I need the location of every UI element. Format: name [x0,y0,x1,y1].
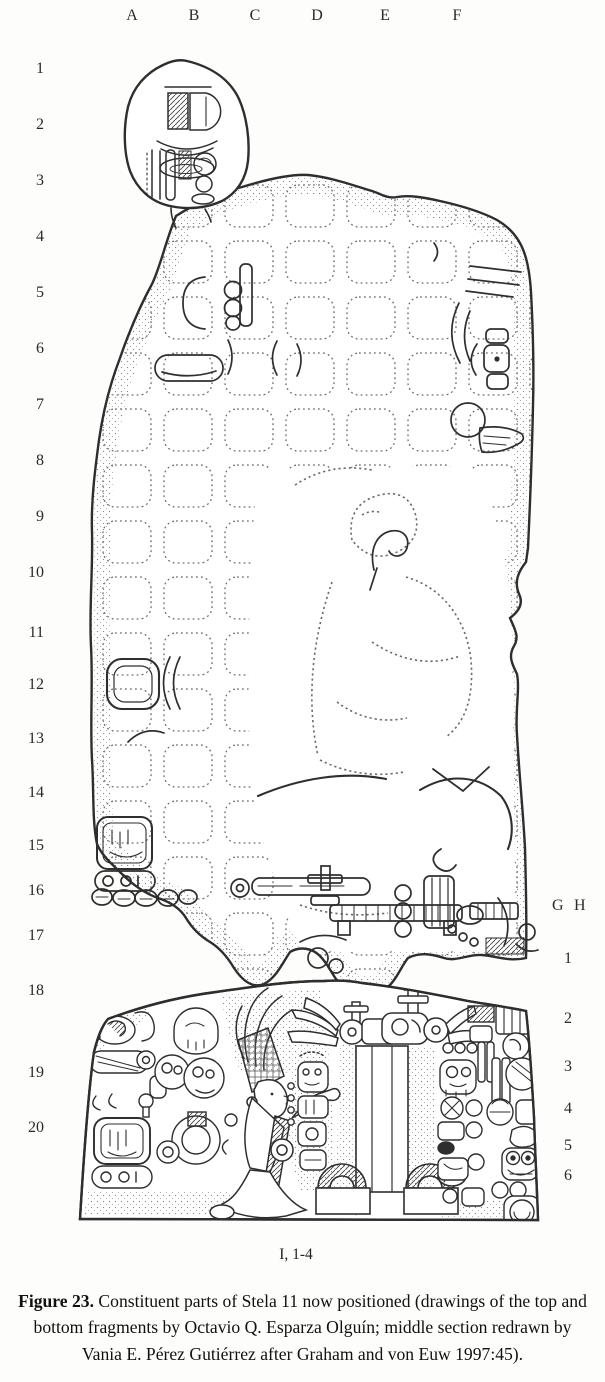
column-label-E: E [380,8,390,24]
row-label-18: 18 [18,983,44,999]
column-label-F: F [453,8,462,24]
row-label-15: 15 [18,838,44,854]
column-label-D: D [311,8,323,24]
row-label-5: 5 [18,285,44,301]
row-label-2: 2 [18,117,44,133]
right-row-label-2: 2 [558,1011,578,1027]
figure-caption-number: Figure 23. [18,1291,94,1311]
bottom-fragment [80,981,540,1228]
right-row-label-4: 4 [558,1101,578,1117]
row-label-19: 19 [18,1065,44,1081]
bottom-grid-label: I, 1-4 [279,1246,313,1264]
middle-section [90,175,538,995]
column-label-B: B [189,8,200,24]
column-label-A: A [126,8,138,24]
right-row-label-1: 1 [558,951,578,967]
row-label-6: 6 [18,341,44,357]
column-label-H: H [574,898,586,914]
stela-drawing [0,0,605,1382]
row-label-17: 17 [18,928,44,944]
row-label-9: 9 [18,509,44,525]
row-label-10: 10 [18,565,44,581]
row-label-14: 14 [18,785,44,801]
right-row-label-3: 3 [558,1059,578,1075]
row-label-20: 20 [18,1120,44,1136]
right-row-label-5: 5 [558,1138,578,1154]
row-label-1: 1 [18,61,44,77]
figure-caption-text: Constituent parts of Stela 11 now positi… [34,1291,587,1364]
row-label-16: 16 [18,883,44,899]
column-label-G: G [552,898,564,914]
row-label-8: 8 [18,453,44,469]
row-label-4: 4 [18,229,44,245]
row-label-12: 12 [18,677,44,693]
row-label-7: 7 [18,397,44,413]
row-label-11: 11 [18,625,44,641]
row-label-3: 3 [18,173,44,189]
row-label-13: 13 [18,731,44,747]
paper-page: A B C D E F 1 2 3 4 5 6 7 8 9 10 11 12 1… [0,0,605,1382]
right-row-label-6: 6 [558,1168,578,1184]
figure-caption: Figure 23. Constituent parts of Stela 11… [16,1288,589,1367]
column-label-C: C [250,8,261,24]
